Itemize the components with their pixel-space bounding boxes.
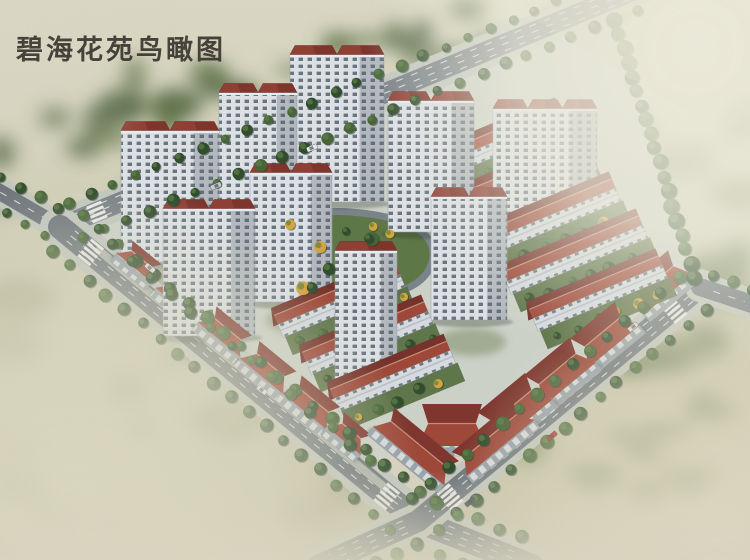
haze-overlay <box>0 0 750 560</box>
page-title: 碧海花苑鸟瞰图 <box>16 28 226 67</box>
aerial-rendering: 碧海花苑鸟瞰图 <box>0 0 750 560</box>
scene-canvas <box>0 0 750 560</box>
